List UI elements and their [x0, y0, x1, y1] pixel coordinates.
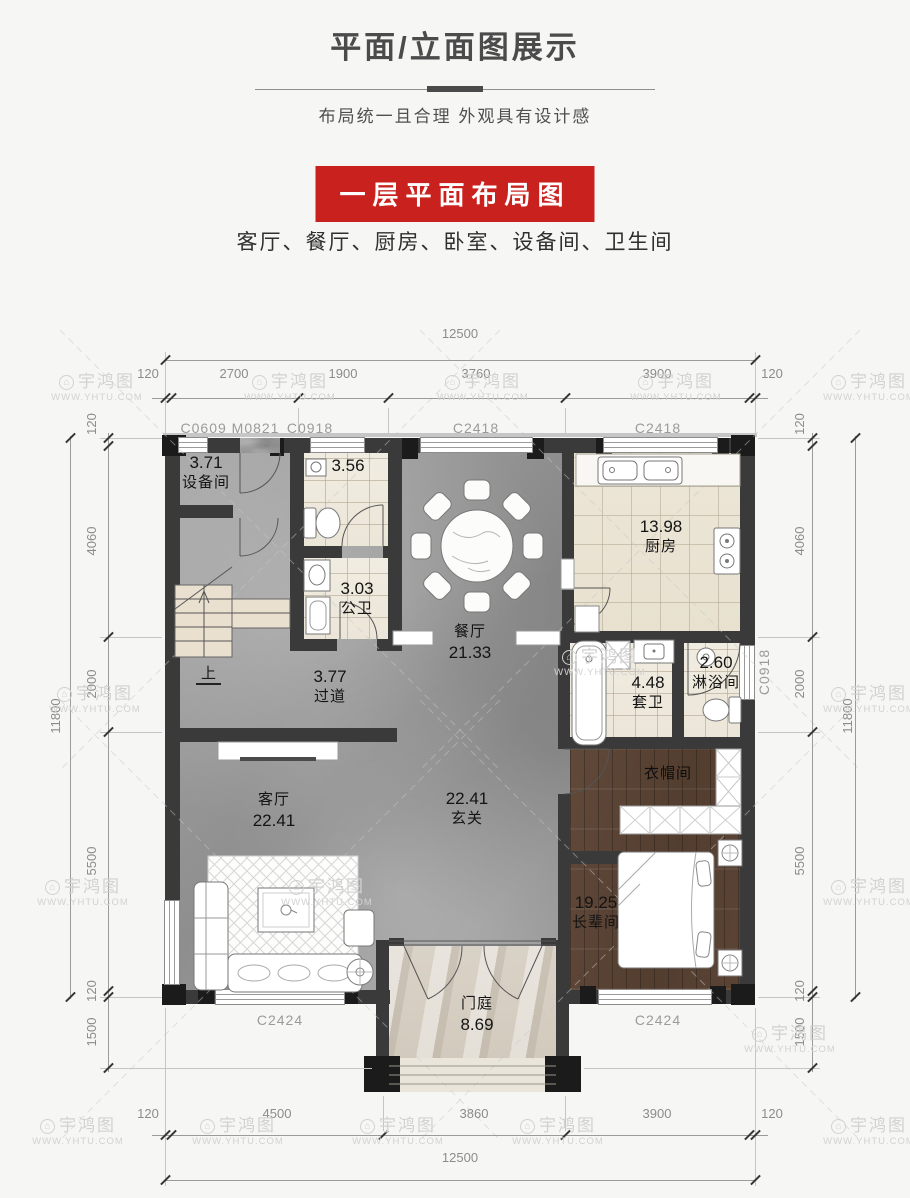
watermark: ⌂宇鸿图WWW.YHTU.COM [730, 1024, 850, 1056]
extension-line [584, 1068, 820, 1069]
brand-logo-icon: ⌂ [831, 880, 846, 895]
window-c2424-b [598, 989, 712, 1005]
dim-left-5: 1500 [84, 997, 100, 1067]
wall-pier [198, 986, 214, 1004]
extension-line [565, 1096, 566, 1131]
dim-line [152, 1135, 768, 1136]
floor-wood-bedroom [570, 749, 740, 990]
window-label-c2424-a: C2424 [215, 1012, 345, 1028]
wall-porch-stub-left [389, 938, 404, 946]
window-c0609 [178, 437, 208, 453]
watermark-logo-row: ⌂宇鸿图 [498, 1116, 618, 1136]
dim-bottom-2: 3860 [439, 1106, 509, 1122]
dim-line [70, 436, 71, 999]
stairs-up-label: 上 [196, 662, 221, 683]
dim-left-total: 11800 [48, 681, 64, 751]
watermark-site: WWW.YHTU.COM [730, 1044, 850, 1056]
dim-line [108, 433, 109, 1072]
extension-line [100, 1068, 372, 1069]
watermark: ⌂宇鸿图WWW.YHTU.COM [809, 1116, 910, 1148]
title-divider-accent [427, 86, 483, 92]
wall-h3 [558, 631, 740, 643]
room-label-guodao: 3.77 过道 [270, 666, 390, 707]
room-label-gongwei: 3.03 公卫 [297, 578, 417, 619]
watermark-brand: 宇鸿图 [850, 684, 907, 704]
dim-bottom-3: 3900 [622, 1106, 692, 1122]
dim-right-1: 4060 [792, 506, 808, 576]
watermark-site: WWW.YHTU.COM [809, 1136, 910, 1148]
brand-logo-icon: ⌂ [520, 1119, 535, 1134]
extension-line [388, 408, 389, 434]
brand-logo-icon: ⌂ [59, 375, 74, 390]
wall-v2b-a [562, 453, 574, 560]
poster-page: 平面/立面图展示 布局统一且合理 外观具有设计感 一层平面布局图 客厅、餐厅、厨… [0, 0, 910, 1198]
dim-left-1: 4060 [84, 506, 100, 576]
wall-v2 [388, 453, 402, 651]
dim-line [812, 433, 813, 1072]
dim-left-2: 2000 [84, 649, 100, 719]
dim-top-total: 12500 [425, 326, 495, 342]
window-c2418-b [603, 437, 718, 453]
wall-pier [710, 986, 726, 1004]
room-label-keting: 客厅 22.41 [214, 790, 334, 831]
watermark: ⌂宇鸿图WWW.YHTU.COM [809, 372, 910, 404]
corner-block [731, 435, 755, 456]
watermark-logo-row: ⌂宇鸿图 [809, 877, 910, 897]
window-left-living [164, 900, 180, 985]
watermark-brand: 宇鸿图 [379, 1116, 436, 1136]
room-list-line: 客厅、餐厅、厨房、卧室、设备间、卫生间 [0, 226, 910, 256]
watermark-brand: 宇鸿图 [850, 372, 907, 392]
dim-top-1: 2700 [199, 366, 269, 382]
dim-bottom-0: 120 [113, 1106, 183, 1122]
window-label-c2418-b: C2418 [593, 420, 723, 436]
door-gap-m0821 [240, 438, 280, 453]
watermark-site: WWW.YHTU.COM [809, 704, 910, 716]
dim-right-0: 120 [792, 389, 808, 459]
window-label-c2418-a: C2418 [411, 420, 541, 436]
brand-logo-icon: ⌂ [45, 880, 60, 895]
watermark-site: WWW.YHTU.COM [23, 897, 143, 909]
window-c2418-a [420, 437, 533, 453]
wall-356-divider-a [304, 546, 342, 558]
dim-right-total: 11800 [840, 681, 856, 751]
dim-bottom-total: 12500 [425, 1150, 495, 1166]
dim-left-0: 120 [84, 389, 100, 459]
watermark-site: WWW.YHTU.COM [18, 1136, 138, 1148]
page-subtitle: 布局统一且合理 外观具有设计感 [0, 102, 910, 127]
window-c2424-a [215, 989, 345, 1005]
dim-top-2: 1900 [308, 366, 378, 382]
corner-block [731, 984, 755, 1005]
extension-line [383, 1096, 384, 1131]
dim-line [165, 360, 755, 361]
wall-h2-main [180, 728, 397, 742]
watermark: ⌂宇鸿图WWW.YHTU.COM [498, 1116, 618, 1148]
watermark-site: WWW.YHTU.COM [809, 392, 910, 404]
dim-right-3: 5500 [792, 826, 808, 896]
dim-line [165, 1180, 755, 1181]
corner-block [162, 984, 186, 1005]
watermark-site: WWW.YHTU.COM [178, 1136, 298, 1148]
dim-bottom-1: 4500 [242, 1106, 312, 1122]
wall-h1-a [290, 639, 337, 651]
extension-line [565, 408, 566, 434]
watermark-logo-row: ⌂宇鸿图 [23, 877, 143, 897]
room-label-canting: 餐厅 21.33 [410, 622, 530, 663]
window-label-c0918-right: C0918 [756, 607, 772, 737]
room-label-shebeijian: 3.71 设备间 [146, 452, 266, 493]
room-label-xuanguan: 22.41 玄关 [407, 788, 527, 829]
page-title: 平面/立面图展示 [0, 22, 910, 67]
porch-pillar-left [364, 1056, 400, 1092]
watermark: ⌂宇鸿图WWW.YHTU.COM [23, 877, 143, 909]
dim-top-5: 120 [737, 366, 807, 382]
brand-logo-icon: ⌂ [831, 375, 846, 390]
watermark-logo-row: ⌂宇鸿图 [809, 372, 910, 392]
wall-porch-left [376, 940, 389, 1058]
dim-right-2: 2000 [792, 649, 808, 719]
wall-equip-bottom [180, 505, 233, 518]
wall-h4 [558, 737, 740, 749]
brand-logo-icon: ⌂ [831, 1119, 846, 1134]
wall-pier [580, 986, 596, 1004]
window-c0918-top [310, 437, 365, 453]
wall-v3-a [558, 643, 570, 749]
extension-line [755, 352, 756, 434]
watermark: ⌂宇鸿图WWW.YHTU.COM [809, 684, 910, 716]
porch-pillar-right [545, 1056, 581, 1092]
wall-v2b-b [562, 590, 574, 631]
extension-line [165, 1008, 166, 1186]
room-label-menting: 门庭 8.69 [417, 994, 537, 1035]
watermark-site: WWW.YHTU.COM [338, 1136, 458, 1148]
wall-porch-right [556, 940, 569, 1058]
room-label-yimao: 衣帽间 [608, 764, 728, 784]
wall-porch-stub-right [541, 938, 556, 946]
dim-line [152, 398, 768, 399]
dim-top-3: 3760 [441, 366, 511, 382]
dim-top-0: 120 [113, 366, 183, 382]
watermark-brand: 宇鸿图 [850, 877, 907, 897]
watermark-brand: 宇鸿图 [850, 1116, 907, 1136]
watermark-logo-row: ⌂宇鸿图 [809, 684, 910, 704]
brand-logo-icon: ⌂ [360, 1119, 375, 1134]
watermark-logo-row: ⌂宇鸿图 [730, 1024, 850, 1044]
room-label-chufang: 13.98 厨房 [601, 516, 721, 557]
watermark: ⌂宇鸿图WWW.YHTU.COM [809, 877, 910, 909]
watermark-site: WWW.YHTU.COM [498, 1136, 618, 1148]
brand-logo-icon: ⌂ [40, 1119, 55, 1134]
wall-h5-bedroom [570, 851, 622, 864]
window-label-c2424-b: C2424 [593, 1012, 723, 1028]
dim-right-5: 1500 [792, 997, 808, 1067]
wall-right [740, 438, 755, 1004]
watermark-site: WWW.YHTU.COM [809, 897, 910, 909]
dim-left-3: 5500 [84, 826, 100, 896]
watermark-brand: 宇鸿图 [59, 1116, 116, 1136]
banner: 一层平面布局图 [315, 166, 594, 222]
dim-top-4: 3900 [622, 366, 692, 382]
watermark-logo-row: ⌂宇鸿图 [809, 1116, 910, 1136]
window-label-c0918-top: C0918 [245, 420, 375, 436]
floor-porch-steps [389, 1058, 556, 1092]
extension-line [755, 1008, 756, 1186]
brand-logo-icon: ⌂ [200, 1119, 215, 1134]
room-label-356: 3.56 [288, 455, 408, 476]
dim-bottom-4: 120 [737, 1106, 807, 1122]
room-label-zhangbei: 19.25 长辈间 [536, 892, 656, 933]
